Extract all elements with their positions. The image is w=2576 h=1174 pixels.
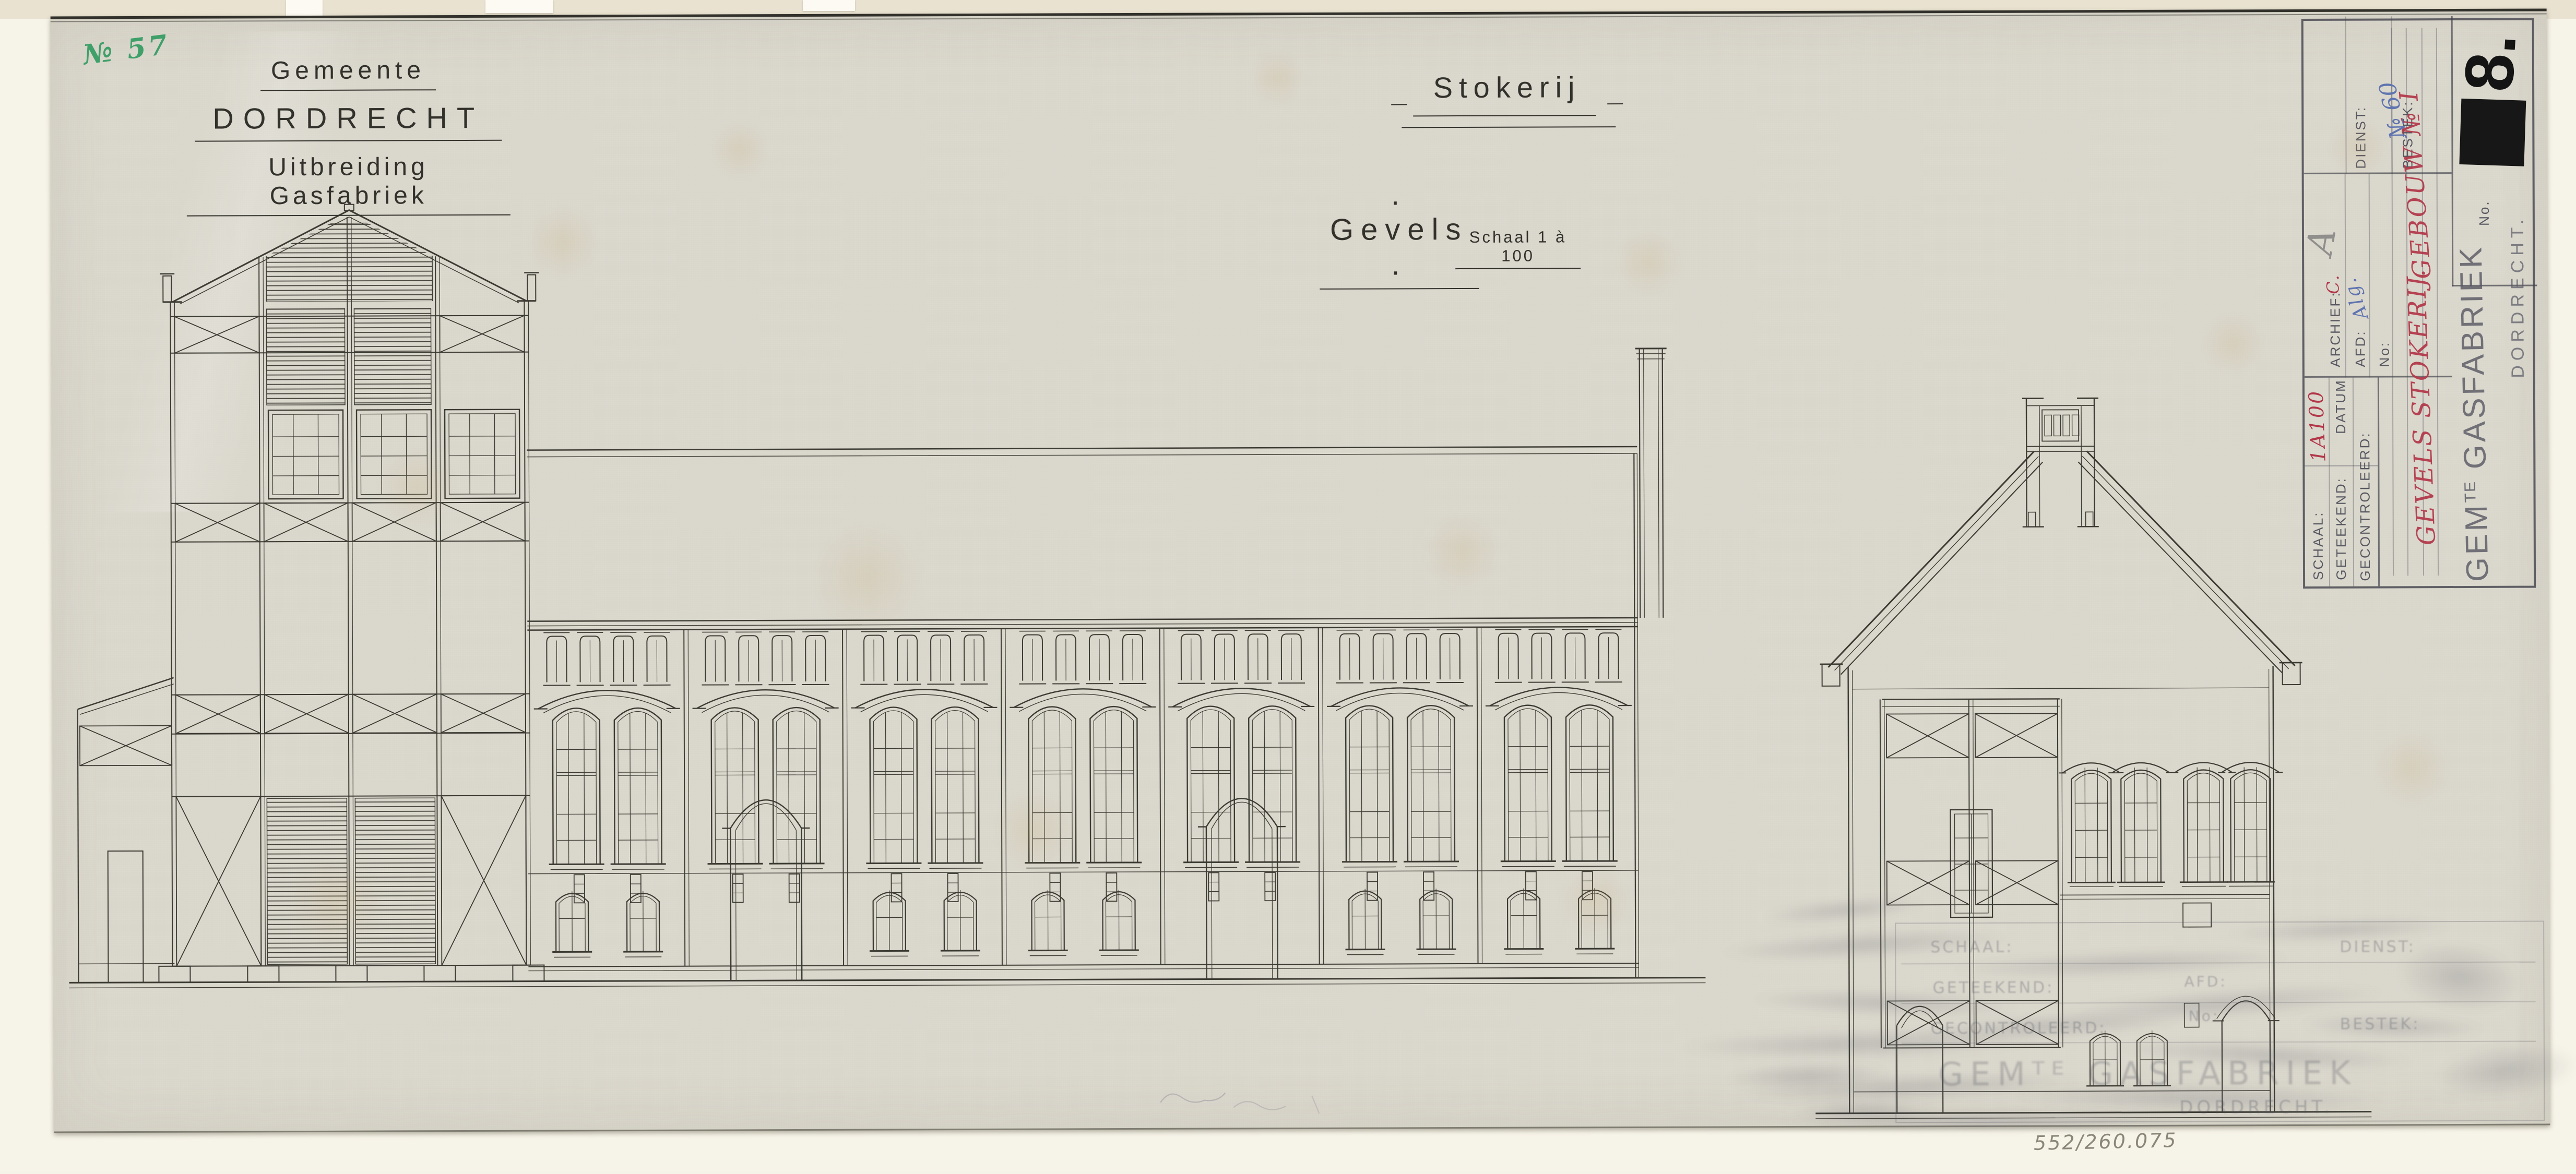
municipality-word: Gemeente bbox=[260, 56, 436, 91]
scale-note: Schaal 1 à 100 bbox=[1455, 227, 1581, 269]
ghost-bestek-label: BESTEK: bbox=[2340, 1015, 2420, 1033]
ghost-no-label: No: bbox=[2189, 1007, 2220, 1024]
afd-value-blue: Alg. bbox=[2338, 274, 2372, 322]
afd-label: AFD: bbox=[2353, 330, 2369, 367]
number-label: No. bbox=[2476, 200, 2492, 226]
main-hall-facade bbox=[527, 349, 1669, 981]
title-block-inner: SCHAAL: 1A100 DATUM GETEEKEND: GECONTROL… bbox=[2301, 18, 2536, 589]
header-center: Stokerij bbox=[1387, 70, 1627, 107]
tb-rule bbox=[2369, 174, 2370, 378]
schaal-value: 1A100 bbox=[2305, 389, 2330, 463]
archief-label: ARCHIEF: bbox=[2327, 291, 2343, 367]
ghost-org-stamp: GEMᵀᴱ GASFABRIEK bbox=[1938, 1054, 2357, 1094]
project-title: Uitbreiding Gasfabriek bbox=[186, 152, 510, 217]
title-block: SCHAAL: 1A100 DATUM GETEEKEND: GECONTROL… bbox=[2301, 18, 2536, 589]
ghost-afd-label: AFD: bbox=[2184, 973, 2227, 990]
paper-tab bbox=[803, 0, 855, 11]
org-stamp-sup: TE bbox=[2462, 481, 2479, 503]
datum-label: DATUM bbox=[2333, 379, 2349, 434]
header-left: Gemeente DORDRECHT Uitbreiding Gasfabrie… bbox=[186, 56, 511, 217]
geteekend-label: GETEEKEND: bbox=[2333, 477, 2349, 580]
ghost-city-stamp: DORDRECHT. bbox=[2179, 1097, 2333, 1118]
title-dash bbox=[1607, 103, 1623, 104]
archief-value-pencil: A bbox=[2298, 223, 2345, 258]
paper-tab bbox=[485, 0, 553, 13]
org-stamp-main: GASFABRIEK bbox=[2453, 244, 2492, 469]
archive-reference: 552/260.075 bbox=[2034, 1129, 2178, 1155]
blacked-out-number bbox=[2459, 99, 2526, 166]
left-annex bbox=[78, 678, 175, 983]
tb-rule bbox=[2329, 378, 2330, 586]
org-stamp-prefix: GEM bbox=[2459, 502, 2495, 582]
city-name: DORDRECHT bbox=[195, 101, 502, 142]
no-field-label: No: bbox=[2377, 341, 2393, 367]
ghost-dienst-label: DIENST: bbox=[2340, 938, 2416, 956]
tb-rule bbox=[2345, 17, 2346, 174]
scanned-drawing: № 57 Gemeente DORDRECHT Uitbreiding Gasf… bbox=[0, 0, 2576, 1174]
org-stamp: GEMTE GASFABRIEK bbox=[2452, 244, 2495, 582]
dienst-label: DIENST: bbox=[2353, 106, 2369, 169]
pencil-scribble bbox=[1160, 1093, 1319, 1114]
ghost-geteekend-label: GETEEKEND: bbox=[1932, 978, 2054, 997]
paper-tab bbox=[286, 0, 323, 16]
tb-divider bbox=[2378, 378, 2380, 586]
city-stamp: DORDRECHT. bbox=[2508, 215, 2528, 378]
ghost-gecontroleerd-label: GECONTROLEERD: bbox=[1931, 1019, 2107, 1038]
drawing-sheet: № 57 Gemeente DORDRECHT Uitbreiding Gasf… bbox=[51, 8, 2550, 1133]
drawing-title: Stokerij bbox=[1426, 70, 1588, 107]
sheet-number: 8. bbox=[2449, 31, 2531, 94]
gecontroleerd-label: GECONTROLEERD: bbox=[2357, 432, 2373, 581]
subtitle-block: . Gevels . bbox=[1320, 177, 1477, 290]
ghost-schaal-label: SCHAAL: bbox=[1930, 938, 2013, 957]
title-dash bbox=[1391, 104, 1407, 105]
tb-rule bbox=[2353, 378, 2354, 586]
coal-tower bbox=[157, 204, 544, 983]
scale-block: Schaal 1 à 100 bbox=[1455, 227, 1581, 269]
schaal-label: SCHAAL: bbox=[2310, 511, 2326, 580]
tb-rule bbox=[2345, 174, 2346, 378]
